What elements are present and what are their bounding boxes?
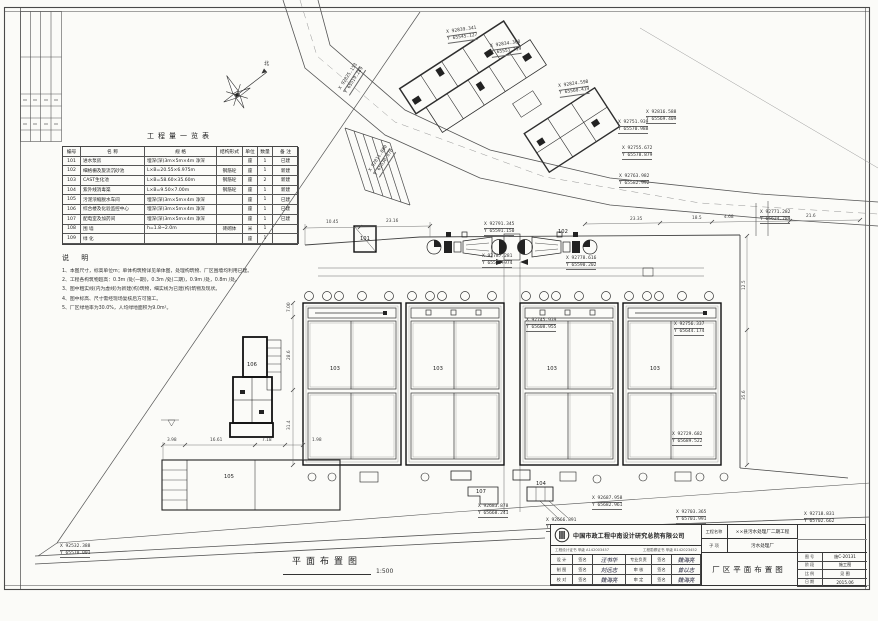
quantity-table-cell: 座	[243, 166, 258, 176]
quantity-table-cell	[217, 234, 243, 244]
plan-title-underline	[283, 571, 371, 575]
quantity-table-cell: 109	[63, 234, 81, 244]
project-name-label: 工程名称	[701, 525, 728, 538]
quantity-table-cell: 105	[63, 195, 81, 205]
structure-label: 106	[247, 362, 257, 368]
quantity-table-cell: 污泥浓缩脱水车间	[81, 195, 145, 205]
coordinate-label: X 92771.282Y 65624.789	[760, 210, 790, 225]
structure-label: 103	[433, 366, 443, 372]
notes-title: 说 明	[62, 253, 322, 263]
quantity-table-cell: 座	[243, 215, 258, 225]
quantity-table-cell: L×B=58.60×35.60m	[145, 176, 217, 186]
structure-label: 103	[547, 366, 557, 372]
quantity-table-cell: 座	[243, 186, 258, 196]
coordinate-x: X 92756.337	[674, 322, 704, 329]
cert-right: 工程勘察证书 甲级 B142023452	[643, 548, 697, 553]
quantity-table-header: 结构形式	[217, 147, 243, 157]
quantity-table-cell: 座	[243, 176, 258, 186]
dimension-label: 28.6	[287, 350, 292, 360]
titleblock-sign-cell: 制 图	[551, 565, 573, 575]
subitem-value: 污水处理厂	[728, 539, 797, 552]
coordinate-y: Y 65582.992	[619, 181, 649, 188]
quantity-table-cell	[217, 195, 243, 205]
quantity-table-cell	[217, 205, 243, 215]
quantity-table-cell: 103	[63, 176, 81, 186]
coordinate-y: Y 65668.241	[478, 511, 508, 518]
coordinate-label: X 92787.281Y 65585.974	[482, 254, 512, 269]
quantity-table-cell: 102	[63, 166, 81, 176]
coordinate-y: Y 65570.001	[60, 551, 90, 558]
quantity-table-header: 编号	[63, 147, 81, 157]
quantity-table-header: 单位	[243, 147, 258, 157]
coordinate-y: Y 65590.202	[566, 263, 596, 270]
north-compass-icon	[213, 69, 267, 116]
coordinate-x: X 92763.982	[619, 174, 649, 181]
quantity-table-cell: 紫外线消毒渠	[81, 186, 145, 196]
quantity-table-cell: 埋深(深)3m×5m×4m 净深	[145, 215, 217, 225]
titleblock-sign-cell: 审 定	[626, 575, 652, 585]
coordinate-x: X 92778.616	[566, 256, 596, 263]
coordinate-x: X 92687.958	[592, 496, 622, 503]
titleblock-field-value: 施C-20131	[823, 553, 867, 562]
coordinate-label: X 92755.672Y 65578.879	[622, 146, 652, 161]
structure-label: 105	[224, 474, 234, 480]
quantity-table-header: 规 格	[145, 147, 217, 157]
dimension-label: 4.68	[724, 215, 734, 220]
quantity-table-cell: 1	[258, 186, 273, 196]
drawing-number-grid: 图 号施C-20131阶 段施工图比 例见 图日 期2015.06	[797, 553, 867, 587]
quantity-table-cell: 砖砌体	[217, 225, 243, 235]
dimension-label: 12.5	[742, 280, 747, 290]
quantity-table-cell: 106	[63, 205, 81, 215]
quantity-table-header: 备 注	[273, 147, 299, 157]
coordinate-x: X 92816.588	[646, 110, 676, 117]
coordinate-y: Y 65624.789	[760, 217, 790, 224]
coordinate-y: Y 65682.961	[592, 503, 622, 510]
quantity-table-cell: 埋深(深)3m×5m×4m 净深	[145, 157, 217, 167]
coordinate-y: Y 65591.150	[484, 229, 514, 236]
titleblock-sign-cell: 审 核	[626, 565, 652, 575]
coordinate-x: X 92718.831	[804, 512, 834, 519]
plan-title-text: 平面布置图	[283, 554, 371, 567]
company-name: 中国市政工程中南设计研究总院有限公司	[573, 531, 685, 540]
quantity-table-cell: 钢筋砼	[217, 186, 243, 196]
quantity-table-cell: 座	[243, 205, 258, 215]
quantity-table-cell: 新建	[273, 186, 299, 196]
coordinate-x: X 92791.345	[484, 222, 514, 229]
structure-label: 107	[476, 489, 486, 495]
notes-list: 1、本图尺寸，标高单位m；单体构筑物详见单体图，处理构筑物、厂区围墙均利用已建。…	[62, 270, 322, 312]
quantity-table-cell: 米	[243, 225, 258, 235]
quantity-table-cell	[273, 225, 299, 235]
revision-strip	[21, 12, 62, 142]
quantity-table-cell: 1	[258, 166, 273, 176]
dimension-label: 31.4	[287, 420, 292, 430]
drawing-sheet: 工程量一览表 编号名 称规 格结构形式单位数量备 注101进水泵房埋深(深)3m…	[0, 0, 878, 621]
coordinate-label: X 92687.958Y 65682.961	[592, 496, 622, 511]
titleblock-sign-cell: 设 计	[551, 555, 573, 565]
cert-left: 工程设计证书 甲级 A142003457	[555, 548, 609, 553]
titleblock-sign-cell: 专业负责	[626, 555, 652, 565]
quantity-table-header: 名 称	[81, 147, 145, 157]
dimension-label: 23.35	[630, 217, 642, 222]
quantity-table-cell: 107	[63, 215, 81, 225]
dimension-label: 16.61	[210, 438, 222, 443]
dimension-label: 7.18	[262, 438, 272, 443]
quantity-table-cell: 新建	[273, 176, 299, 186]
title-block: 中国市政工程中南设计研究总院有限公司 工程设计证书 甲级 A142003457 …	[550, 524, 866, 586]
quantity-table-cell: 座	[243, 157, 258, 167]
elevation-mark	[161, 420, 179, 426]
south-structures	[308, 268, 728, 520]
quantity-table-cell: h=1.8~2.0m	[145, 225, 217, 235]
dimension-label: 7.00	[287, 302, 292, 312]
coordinate-x: X 92745.939	[526, 318, 556, 325]
coordinate-label: X 92745.939Y 65608.955	[526, 318, 556, 333]
signature-grid: 设 计签名汪书华专业负责签名魏海亮制 图签名刘远志审 核签名曾以志校 对签名魏海…	[551, 555, 701, 585]
structure-label: 102	[558, 229, 568, 235]
company-logo-icon	[554, 527, 570, 543]
dimension-label: 21.6	[806, 214, 816, 219]
structure-label: 101	[360, 236, 370, 242]
titleblock-sign-cell: 签名	[573, 575, 593, 585]
coordinate-label: X 92683.878Y 65668.241	[478, 504, 508, 519]
quantity-table-cell: 钢筋砼	[217, 176, 243, 186]
quantity-table-cell: 新建	[273, 166, 299, 176]
coordinate-y: Y 65585.974	[482, 261, 512, 268]
quantity-table-cell	[217, 215, 243, 225]
titleblock-sign-cell: 签名	[652, 555, 672, 565]
quantity-table-cell: 101	[63, 157, 81, 167]
quantity-table-cell: 1	[258, 205, 273, 215]
coordinate-label: X 92703.365Y 65701.991	[676, 510, 706, 525]
titleblock-field-value: 2015.06	[823, 579, 867, 588]
coordinate-label: X 92763.982Y 65582.992	[619, 174, 649, 189]
quantity-table-cell: 围 墙	[81, 225, 145, 235]
titleblock-sign-cell: 刘远志	[593, 565, 626, 575]
quantity-table-cell: 埋深(深)3m×5m×4m 净深	[145, 205, 217, 215]
title-block-fields-section: 图 号施C-20131阶 段施工图比 例见 图日 期2015.06	[797, 525, 867, 585]
titleblock-sign-cell: 签名	[652, 565, 672, 575]
titleblock-sign-cell: 曾以志	[672, 565, 701, 575]
titleblock-field-value: 见 图	[823, 570, 867, 579]
coordinate-label: X 92532.388Y 65570.001	[60, 544, 90, 559]
coordinate-label: X 92791.345Y 65591.150	[484, 222, 514, 237]
coordinate-label: X 92816.588Y 65569.409	[646, 110, 676, 125]
titleblock-sign-cell: 魏海亮	[672, 575, 701, 585]
coordinate-x: X 92683.878	[478, 504, 508, 511]
quantity-table-cell: 2	[258, 176, 273, 186]
dewatering-building	[162, 460, 340, 510]
titleblock-field-label: 图 号	[797, 553, 823, 562]
title-block-company-section: 中国市政工程中南设计研究总院有限公司 工程设计证书 甲级 A142003457 …	[551, 525, 702, 585]
titleblock-sign-cell: 魏海亮	[672, 555, 701, 565]
quantity-table-cell: 已建	[273, 215, 299, 225]
admin-building	[230, 337, 281, 437]
coordinate-y: Y 65608.955	[526, 325, 556, 332]
quantity-table-cell: L×B=20.55×6.975m	[145, 166, 217, 176]
note-item: 3、图中粗实线(内为虚线)为新建(构)筑物，细实线为已建(构)筑物及现状。	[62, 288, 322, 293]
plan-title: 平面布置图 1:500	[283, 554, 423, 575]
quantity-table-cell	[145, 234, 217, 244]
quantity-table-cell: 1	[258, 215, 273, 225]
quantity-table-header: 数量	[258, 147, 273, 157]
dimension-label: 35.6	[742, 390, 747, 400]
quantity-table-cell: 已建	[273, 157, 299, 167]
quantity-table-cell: 座	[243, 195, 258, 205]
coordinate-y: Y 65569.409	[646, 117, 676, 124]
project-name-value: ××县污水处理厂二期工程	[728, 525, 797, 538]
quantity-table-cell: 座	[243, 234, 258, 244]
structure-label: 103	[650, 366, 660, 372]
quantity-table-cell: 1	[258, 157, 273, 167]
dimension-label: 18.5	[692, 216, 702, 221]
titleblock-field-value: 施工图	[823, 562, 867, 571]
coordinate-y: Y 65578.879	[622, 153, 652, 160]
quantity-table-title: 工程量一览表	[62, 131, 298, 144]
plan-scale: 1:500	[376, 568, 393, 575]
quantity-table-cell: 配电室及加药间	[81, 215, 145, 225]
coordinate-y: Y 65644.174	[674, 329, 704, 336]
dimension-label: 23.16	[386, 219, 398, 224]
coordinate-x: X 92729.682	[672, 432, 702, 439]
note-item: 1、本图尺寸，标高单位m；单体构筑物详见单体图，处理构筑物、厂区围墙均利用已建。	[62, 270, 322, 275]
subitem-label: 子 项	[701, 539, 728, 552]
coordinate-label: X 92756.337Y 65644.174	[674, 322, 704, 337]
dimension-label: 1.98	[312, 438, 322, 443]
quantity-table-cell: 108	[63, 225, 81, 235]
title-block-project-section: 工程名称 ××县污水处理厂二期工程 子 项 污水处理厂 厂区平面布置图	[701, 525, 798, 585]
dimension-label: 3.98	[167, 438, 177, 443]
dimension-label: 10.45	[326, 220, 338, 225]
titleblock-field-label: 阶 段	[797, 562, 823, 571]
quantity-table-cell: 1	[258, 225, 273, 235]
drawing-title: 厂区平面布置图	[701, 553, 797, 585]
coordinate-x: X 92532.388	[60, 544, 90, 551]
structure-label: 103	[330, 366, 340, 372]
quantity-table-cell: CAST生化池	[81, 176, 145, 186]
titleblock-sign-cell: 签名	[573, 565, 593, 575]
quantity-table-cell: 进水泵房	[81, 157, 145, 167]
north-label: 北	[264, 60, 269, 67]
quantity-table-cell: 综合楼及化验监控中心	[81, 205, 145, 215]
titleblock-sign-cell: 汪书华	[593, 555, 626, 565]
quantity-table-cell	[217, 157, 243, 167]
quantity-table-cell: 细格栅及旋流沉砂池	[81, 166, 145, 176]
titleblock-sign-cell: 校 对	[551, 575, 573, 585]
note-item: 5、厂区绿地率为30.0%，人均绿地面积为9.0m²。	[62, 307, 322, 312]
titleblock-sign-cell: 魏海亮	[593, 575, 626, 585]
coordinate-x: X 92751.939	[618, 120, 648, 127]
quantity-table-cell	[273, 234, 299, 244]
titleblock-field-label: 日 期	[797, 579, 823, 588]
coordinate-x: X 92755.672	[622, 146, 652, 153]
coordinate-x: X 92771.282	[760, 210, 790, 217]
titleblock-field-label: 比 例	[797, 570, 823, 579]
quantity-table-cell: 绿 化	[81, 234, 145, 244]
coordinate-y: Y 65570.988	[618, 127, 648, 134]
note-item: 4、图中标高、尺寸需经现场复核后方可施工。	[62, 298, 322, 303]
coordinate-label: X 92729.682Y 65689.522	[672, 432, 702, 447]
coordinate-x: X 92703.365	[676, 510, 706, 517]
quantity-table: 工程量一览表 编号名 称规 格结构形式单位数量备 注101进水泵房埋深(深)3m…	[62, 131, 298, 245]
coordinate-x: X 92787.281	[482, 254, 512, 261]
quantity-table-cell: 1	[258, 195, 273, 205]
titleblock-sign-cell: 签名	[652, 575, 672, 585]
notes-block: 说 明 1、本图尺寸，标高单位m；单体构筑物详见单体图，处理构筑物、厂区围墙均利…	[62, 253, 322, 316]
coordinate-label: X 92778.616Y 65590.202	[566, 256, 596, 271]
quantity-table-cell: 已建	[273, 195, 299, 205]
quantity-table-cell: 已建	[273, 205, 299, 215]
title-block-blank-cells	[797, 525, 867, 553]
structure-label: 104	[536, 481, 546, 487]
quantity-table-cell: L×B=9.50×7.00m	[145, 186, 217, 196]
quantity-table-cell: 1	[258, 234, 273, 244]
coordinate-y: Y 65689.522	[672, 439, 702, 446]
quantity-table-cell: 104	[63, 186, 81, 196]
quantity-table-cell: 埋深(深)3m×5m×4m 净深	[145, 195, 217, 205]
titleblock-sign-cell: 签名	[573, 555, 593, 565]
plant-fence	[305, 235, 848, 478]
note-item: 2、工程各构筑物超高：0.3m /处(一期)，0.3m /处(二期)，0.9m …	[62, 279, 322, 284]
coordinate-label: X 92751.939Y 65570.988	[618, 120, 648, 135]
quantity-table-grid: 编号名 称规 格结构形式单位数量备 注101进水泵房埋深(深)3m×5m×4m …	[62, 146, 298, 245]
quantity-table-cell: 钢筋砼	[217, 166, 243, 176]
cast-tank-blocks	[303, 292, 721, 466]
